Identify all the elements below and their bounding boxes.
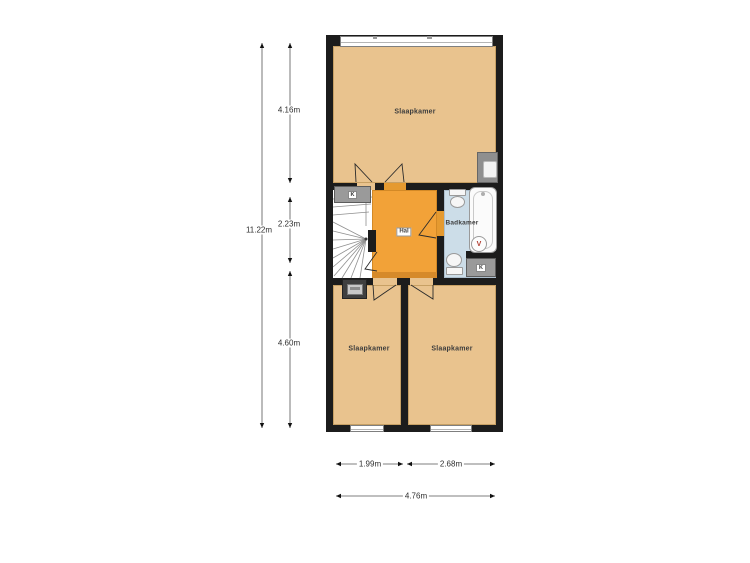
room-label-slaapkamer-bottom-right: Slaapkamer (431, 346, 472, 353)
window-bottom-left (350, 425, 384, 432)
door-opening-bath (437, 211, 444, 236)
closet-k-bath: K (466, 258, 496, 277)
dim-total-width: 4.76m (403, 492, 429, 501)
room-label-badkamer: Badkamer (445, 220, 478, 227)
ventilation-icon: V (471, 236, 487, 252)
dim-segment-v2: 2.23m (276, 220, 302, 229)
door-opening-top-b (384, 183, 406, 190)
closet-k-label: K (348, 191, 358, 199)
dim-segment-v3: 4.60m (276, 339, 302, 348)
dim-segment-h1: 1.99m (357, 460, 383, 469)
sink-icon (477, 152, 498, 183)
meter-cabinet-icon (342, 279, 367, 299)
toilet-icon-2 (446, 253, 462, 267)
room-label-hal: Hal (396, 228, 411, 237)
toilet-tank-2 (446, 267, 463, 275)
room-label-slaapkamer-top: Slaapkamer (394, 109, 435, 116)
window-bottom-right (430, 425, 472, 432)
vent-label: V (477, 241, 482, 248)
window-top (340, 36, 493, 47)
wall-stub-stairs (368, 230, 376, 252)
room-slaapkamer-bottom-right (408, 285, 496, 425)
room-slaapkamer-bottom-left (333, 285, 401, 425)
window-tick (427, 36, 432, 39)
toilet-icon (449, 189, 466, 196)
room-label-slaapkamer-bottom-left: Slaapkamer (348, 346, 389, 353)
dim-segment-h2: 2.68m (438, 460, 464, 469)
door-opening-bottom-right (410, 278, 433, 285)
dim-total-height: 11.22m (244, 226, 274, 235)
closet-k-label: K (476, 264, 486, 272)
window-tick (373, 36, 377, 39)
dim-segment-v1: 4.16m (276, 106, 302, 115)
closet-k-hall: K (334, 186, 371, 203)
floorplan-canvas: K K V Slaapkamer Hal Badkamer Slaapkamer… (0, 0, 750, 563)
toilet-bowl (450, 196, 465, 208)
door-opening-bottom-left (373, 278, 397, 285)
stairwell (333, 190, 372, 278)
